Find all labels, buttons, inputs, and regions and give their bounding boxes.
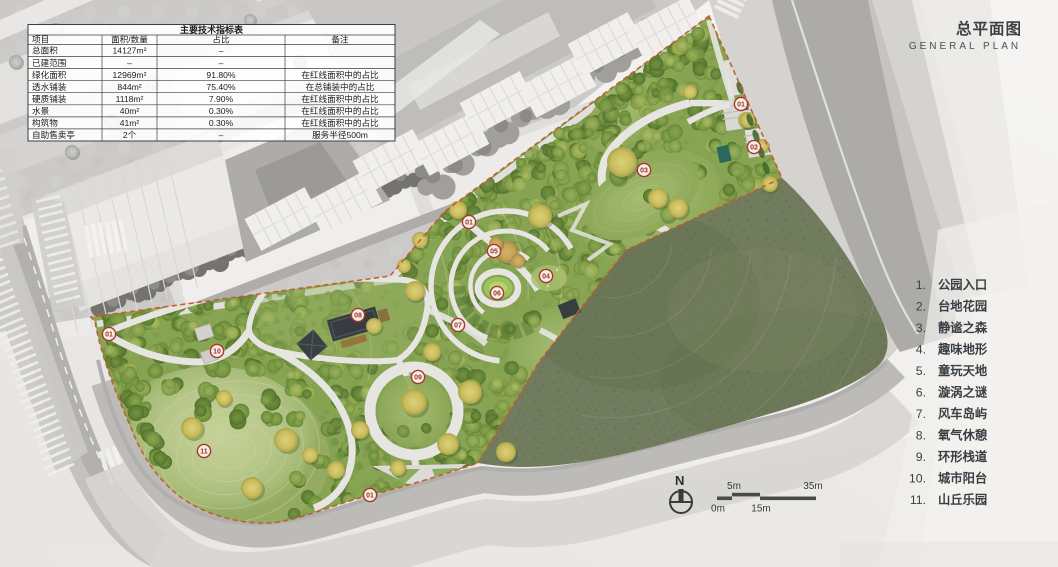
svg-text:备注: 备注 (331, 34, 349, 45)
svg-text:2.: 2. (916, 300, 926, 314)
svg-text:总平面图: 总平面图 (956, 19, 1022, 38)
svg-text:35m: 35m (803, 481, 822, 492)
svg-text:15m: 15m (751, 504, 770, 515)
svg-text:城市阳台: 城市阳台 (938, 471, 987, 486)
svg-text:N: N (675, 473, 684, 488)
svg-text:–: – (219, 130, 224, 140)
svg-text:项目: 项目 (32, 35, 49, 45)
svg-text:8.: 8. (916, 429, 926, 443)
svg-text:漩涡之谜: 漩涡之谜 (938, 385, 988, 400)
svg-text:占比: 占比 (212, 34, 230, 45)
svg-text:0.30%: 0.30% (209, 106, 234, 116)
svg-text:总面积: 总面积 (32, 45, 58, 56)
svg-text:03: 03 (640, 167, 648, 174)
svg-text:01: 01 (366, 492, 374, 499)
svg-text:1118m²: 1118m² (116, 94, 144, 104)
svg-text:0m: 0m (711, 504, 725, 515)
svg-text:2个: 2个 (123, 130, 137, 140)
svg-text:在总铺装中的占比: 在总铺装中的占比 (306, 81, 375, 92)
svg-text:9.: 9. (916, 450, 926, 464)
svg-text:4.: 4. (916, 343, 926, 357)
svg-text:环形栈道: 环形栈道 (938, 449, 988, 464)
svg-text:11.: 11. (910, 493, 926, 507)
svg-text:水景: 水景 (32, 105, 50, 116)
svg-text:1.: 1. (916, 278, 926, 292)
svg-text:5.: 5. (916, 364, 926, 378)
svg-text:在红线面积中的占比: 在红线面积中的占比 (301, 69, 379, 80)
svg-text:04: 04 (542, 273, 550, 280)
svg-text:6.: 6. (916, 386, 926, 400)
svg-text:服务半径500m: 服务半径500m (312, 129, 368, 140)
svg-text:面积/数量: 面积/数量 (111, 34, 148, 45)
svg-text:05: 05 (490, 248, 498, 255)
svg-text:童玩天地: 童玩天地 (938, 363, 988, 378)
svg-text:风车岛屿: 风车岛屿 (938, 406, 987, 421)
svg-text:在红线面积中的占比: 在红线面积中的占比 (301, 117, 379, 128)
svg-text:11: 11 (200, 448, 208, 455)
svg-text:在红线面积中的占比: 在红线面积中的占比 (301, 105, 379, 116)
svg-text:01: 01 (465, 219, 473, 226)
svg-text:公园入口: 公园入口 (938, 278, 987, 292)
svg-text:02: 02 (750, 144, 758, 151)
svg-text:氧气休憩: 氧气休憩 (937, 428, 988, 443)
svg-text:91.80%: 91.80% (206, 70, 236, 80)
svg-text:–: – (219, 58, 224, 68)
svg-text:GENERAL PLAN: GENERAL PLAN (909, 41, 1021, 52)
svg-text:7.90%: 7.90% (209, 94, 234, 104)
svg-text:10.: 10. (909, 472, 926, 486)
svg-text:41m²: 41m² (120, 118, 140, 128)
svg-text:自助售卖亭: 自助售卖亭 (32, 129, 75, 140)
svg-text:硬质铺装: 硬质铺装 (32, 93, 67, 104)
svg-text:0.30%: 0.30% (209, 118, 234, 128)
svg-text:75.40%: 75.40% (206, 82, 236, 92)
svg-text:08: 08 (354, 312, 362, 319)
svg-text:07: 07 (454, 322, 462, 329)
svg-text:844m²: 844m² (117, 82, 141, 92)
svg-text:–: – (127, 58, 132, 68)
svg-text:14127m²: 14127m² (113, 46, 147, 56)
svg-text:台地花园: 台地花园 (938, 299, 987, 314)
svg-text:静谧之森: 静谧之森 (938, 320, 988, 335)
svg-text:山丘乐园: 山丘乐园 (938, 492, 987, 507)
svg-text:01: 01 (105, 331, 113, 338)
svg-text:绿化面积: 绿化面积 (32, 69, 67, 80)
svg-text:透水铺装: 透水铺装 (32, 81, 67, 92)
svg-text:趣味地形: 趣味地形 (937, 342, 988, 357)
svg-text:构筑物: 构筑物 (32, 117, 58, 128)
svg-text:7.: 7. (916, 407, 926, 421)
svg-text:12969m²: 12969m² (113, 70, 147, 80)
svg-text:06: 06 (493, 290, 501, 297)
svg-text:已建范围: 已建范围 (32, 57, 66, 68)
svg-text:3.: 3. (916, 321, 926, 335)
svg-text:09: 09 (414, 374, 422, 381)
svg-text:40m²: 40m² (120, 106, 140, 116)
svg-text:–: – (219, 46, 224, 56)
svg-text:01: 01 (737, 101, 745, 108)
svg-text:在红线面积中的占比: 在红线面积中的占比 (301, 93, 379, 104)
svg-text:5m: 5m (727, 481, 741, 492)
svg-text:主要技术指标表: 主要技术指标表 (180, 24, 244, 35)
svg-text:10: 10 (213, 348, 221, 355)
